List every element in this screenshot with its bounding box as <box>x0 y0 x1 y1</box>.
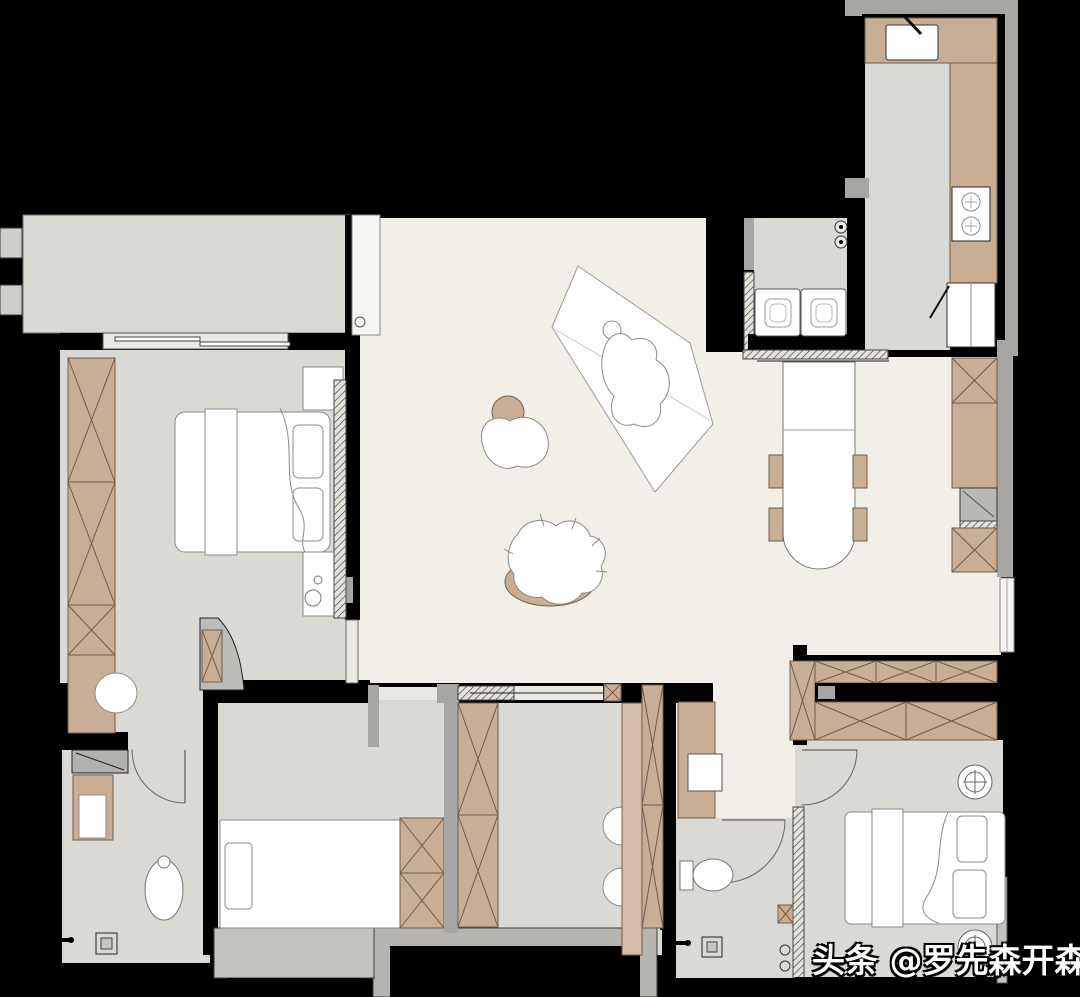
wall-hall-stub <box>663 683 713 703</box>
bedroom2-door-opening <box>379 687 437 700</box>
dining-table <box>783 362 855 569</box>
wall-gray-cap <box>744 218 754 270</box>
floor-plan-svg <box>0 0 1080 997</box>
wall-bath-top <box>53 732 128 750</box>
duct-nook <box>352 215 380 335</box>
sliding-door-kitchen <box>743 350 888 359</box>
kitchen-floor <box>865 63 950 352</box>
vanity-sink <box>95 673 137 713</box>
bay-sill-bedroom2 <box>214 928 374 978</box>
shower2-tap-dot <box>685 940 691 946</box>
tall-cabinet-plain <box>952 403 997 488</box>
bay-frame-bedroom2 <box>229 978 361 997</box>
toilet2-tank <box>680 861 693 890</box>
wall-balcony-left <box>60 333 103 350</box>
washer <box>801 289 846 336</box>
toilet-master <box>145 860 183 920</box>
shower2-tap <box>676 941 686 945</box>
shower-tap-dot <box>68 937 74 943</box>
wall-dining-right <box>997 340 1013 577</box>
wall-laundry-right <box>847 200 861 352</box>
oven-shelf-hatch <box>960 521 997 528</box>
pillow <box>957 816 987 862</box>
floor-plan-image: 头条 @罗先森开森 <box>0 0 1080 997</box>
kitchen-sink <box>886 25 938 60</box>
kitchen-counter <box>950 63 997 283</box>
pouf-chair <box>481 417 548 468</box>
wall-bed3-mid <box>815 683 997 702</box>
dining-chair <box>769 508 783 541</box>
outer-wall-top-kitchen <box>845 0 1008 16</box>
toilet-button <box>158 856 170 868</box>
gray-box <box>818 686 835 699</box>
desk-counter <box>622 703 642 955</box>
cooktop <box>952 187 990 241</box>
meter-dot <box>839 240 843 244</box>
washer <box>755 289 800 336</box>
shower-drain-inner <box>101 938 112 949</box>
pillow <box>293 425 323 478</box>
wall-bath2-bottom <box>673 978 795 997</box>
dining-chair <box>853 455 867 488</box>
bay-inner-study <box>390 946 640 997</box>
meter-dot <box>839 225 843 229</box>
ac-unit <box>0 285 22 315</box>
pillow <box>293 488 323 541</box>
outer-wall-right-kitchen <box>1005 0 1018 356</box>
master-door-opening <box>346 620 358 683</box>
pillow <box>225 843 252 909</box>
bed-runner <box>872 809 903 927</box>
wall-strip-gray <box>368 685 379 747</box>
door-panel <box>200 342 290 346</box>
wall-gray-block <box>845 178 869 198</box>
pillow <box>953 870 986 918</box>
toilet2-bowl <box>693 859 733 891</box>
wall-living-laundry <box>706 212 744 352</box>
bath2-floor <box>676 818 793 978</box>
balcony-floor <box>23 215 350 333</box>
wall-bath2-right-hatch <box>793 807 804 978</box>
shower2-drain-inner <box>707 942 717 952</box>
vanity2-sink <box>688 754 722 791</box>
watermark: 头条 @罗先森开森 <box>812 934 1080 982</box>
wall-bedroom2-left <box>203 680 218 955</box>
window-hatch-master <box>334 380 346 618</box>
ac-unit <box>0 228 22 258</box>
bed-runner <box>205 409 237 555</box>
wall-strip-bedroom2 <box>444 700 458 933</box>
door-panel <box>115 337 200 341</box>
wall-kitchen-dining <box>888 350 1005 357</box>
dining-chair <box>853 508 867 541</box>
under-counter-unit <box>79 795 106 838</box>
dining-chair <box>769 455 783 488</box>
wall-balcony-right <box>288 333 350 350</box>
wall-laundry-top <box>745 200 847 218</box>
